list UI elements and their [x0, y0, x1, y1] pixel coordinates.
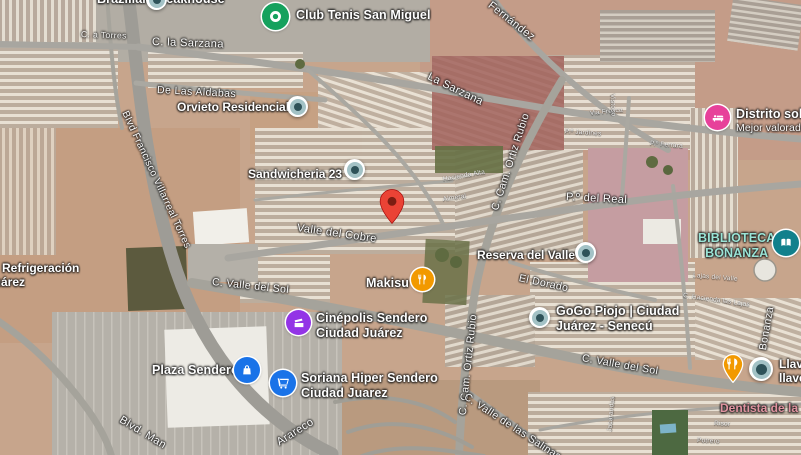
poi-label-club-tenis-san-miguel[interactable]: Club Tenis San Miguel [296, 8, 431, 23]
poi-title-line1: GoGo Piojo | Ciudad [556, 304, 679, 318]
poi-label-soriana-hiper-sendero[interactable]: Soriana Hiper Sendero Ciudad Juarez [301, 371, 438, 401]
poi-title-line2: Juárez [0, 275, 25, 289]
poi-subtitle: Mejor valorados [736, 122, 801, 134]
poi-title-line1: Llaves [779, 357, 801, 371]
shopping-bag-icon[interactable] [234, 357, 260, 383]
restaurant-utensils-pin-icon[interactable] [722, 354, 744, 388]
poi-label-orvieto-residencial[interactable]: Orvieto Residencial [177, 100, 289, 114]
poi-title-line1: Refrigeración [2, 261, 79, 275]
poi-title-line2: Juárez - Senecú [556, 319, 653, 333]
poi-label-biblioteca-bonanza[interactable]: BIBLIOTECA BONANZA [698, 231, 775, 261]
generic-poi-dot-icon[interactable] [749, 357, 773, 381]
poi-label-reserva-del-valle[interactable]: Reserva del Valle [477, 248, 575, 262]
tennis-club-icon[interactable] [262, 3, 289, 30]
red-map-pin-icon[interactable] [379, 189, 405, 229]
poi-label-distrito-soho[interactable]: Distrito soho Mejor valorados [736, 107, 801, 134]
generic-poi-dot-icon[interactable] [344, 159, 365, 180]
poi-title-line1: Soriana Hiper Sendero [301, 371, 438, 385]
generic-poi-dot-icon[interactable] [287, 96, 308, 117]
street-label-risor: Risor [714, 420, 731, 428]
poi-title-line2: Ciudad Juarez [301, 386, 388, 400]
poi-label-cinepolis-sendero[interactable]: Cinépolis Sendero Ciudad Juárez [316, 311, 427, 341]
generic-poi-dot-icon[interactable] [529, 307, 550, 328]
road-label-c-la-sarzana: C. la Sarzana [152, 36, 224, 51]
poi-title-line1: Cinépolis Sendero [316, 311, 427, 325]
generic-poi-dot-icon[interactable] [575, 242, 596, 263]
satellite-map[interactable]: C. a Torres C. la Sarzana La Sarzana Fer… [0, 0, 801, 455]
cinema-icon[interactable] [286, 310, 311, 335]
restaurant-utensils-icon[interactable] [411, 268, 434, 291]
poi-label-refrigeracion[interactable]: Refrigeración Juárez [0, 261, 79, 289]
poi-title-line2: Ciudad Juárez [316, 326, 403, 340]
poi-label-sandwicheria-23[interactable]: Sandwicheria 23 [248, 167, 342, 181]
poi-title-line2: BONANZA [705, 246, 768, 260]
shopping-cart-icon[interactable] [270, 370, 296, 396]
hotel-bed-icon[interactable] [705, 105, 730, 130]
poi-label-plaza-sendero[interactable]: Plaza Sendero [152, 363, 239, 378]
open-book-icon[interactable] [773, 230, 799, 256]
poi-title-line1: BIBLIOTECA [698, 231, 775, 245]
poi-label-gogo-piojo[interactable]: GoGo Piojo | Ciudad Juárez - Senecú [556, 304, 679, 334]
road-label-c-a-torres: C. a Torres [81, 29, 127, 41]
poi-label-makisu[interactable]: Makisu [366, 276, 409, 291]
poi-label-llaves[interactable]: Llaves llavero [779, 357, 801, 385]
poi-label-dentista[interactable]: Dentista de la [720, 401, 798, 415]
street-label-potrero: Potrero [697, 437, 720, 446]
poi-title: Distrito soho [736, 107, 801, 121]
street-label-vistoso: Vistoso [608, 94, 616, 117]
poi-title-line2: llavero [779, 371, 801, 385]
